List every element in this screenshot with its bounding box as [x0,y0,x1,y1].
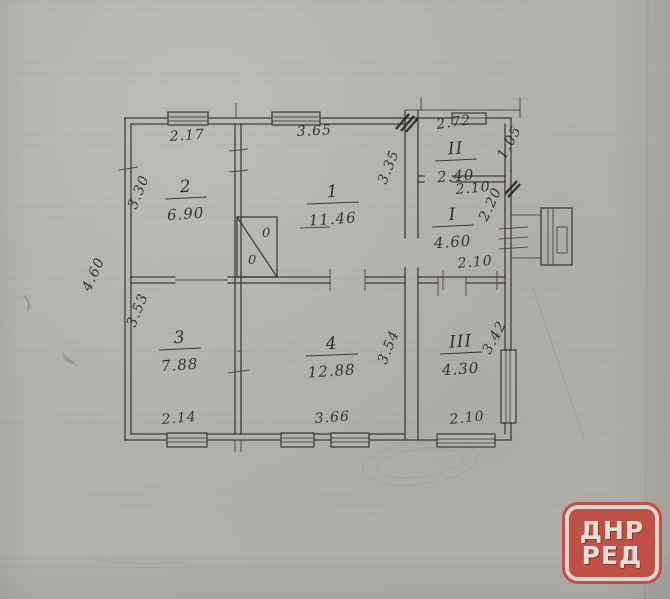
room-fraction-line [440,352,482,354]
stove-zero-mark: 0 [248,253,256,268]
room-number: 2 [178,177,192,198]
dimension-label: 2.72 [434,112,472,133]
room-area: 11.46 [308,208,357,229]
room-number: 1 [326,182,339,203]
window-room3-bottom [167,433,207,447]
watermark-logo: ДНР РЕД [562,502,662,584]
window-room-iii-right [501,350,516,423]
dimension-label: 3.30 [125,173,153,212]
watermark-line2: РЕД [582,543,643,569]
window-room2-top [168,112,208,125]
room-fraction-line [307,202,359,204]
dimension-label: 3.66 [314,409,350,427]
window-room4-bottom-right [331,433,369,447]
window-room-iii-bottom [437,434,495,447]
room-area: 4.60 [432,232,472,253]
porch [511,208,572,265]
dimension-label: 3.65 [296,122,332,140]
room-area: 2.40 [435,166,475,187]
room-area: 4.30 [440,359,480,380]
room-fraction-line [435,159,477,161]
stove [237,217,277,351]
room-number: II [446,138,464,159]
dimension-label: 3.35 [375,148,403,187]
dimension-label: 1.05 [494,123,525,162]
plan-labels: 2.173.652.721.053.303.352.102.202.104.60… [79,112,525,428]
room-fraction-line [432,225,474,227]
dimension-label: 2.10 [448,408,486,428]
room-fraction-line [165,197,207,199]
room-area: 7.88 [160,355,199,376]
room-number: 3 [173,328,186,349]
room-number: I [447,205,457,226]
room-number: III [447,331,472,353]
dimension-label: 2.17 [168,127,205,145]
dimension-label: 3.53 [124,291,152,330]
dimension-label: 2.10 [456,253,493,272]
watermark-line1: ДНР [580,518,645,544]
dimension-label: 4.60 [79,255,109,295]
dimension-label: 2.14 [160,409,197,428]
stove-zero-mark: 0 [262,226,270,241]
room-fraction-line [306,354,358,356]
room-area: 12.88 [307,360,356,381]
room-number: 4 [324,334,338,355]
room-fraction-line [159,348,201,350]
watermark-text: ДНР РЕД [580,518,645,569]
scan-artifacts [24,0,648,599]
room-area: 6.90 [166,204,205,225]
window-room4-bottom-left [281,433,314,447]
scanned-floor-plan-page: 2.173.652.721.053.303.352.102.202.104.60… [0,0,670,599]
dimension-label: 3.54 [375,328,403,367]
